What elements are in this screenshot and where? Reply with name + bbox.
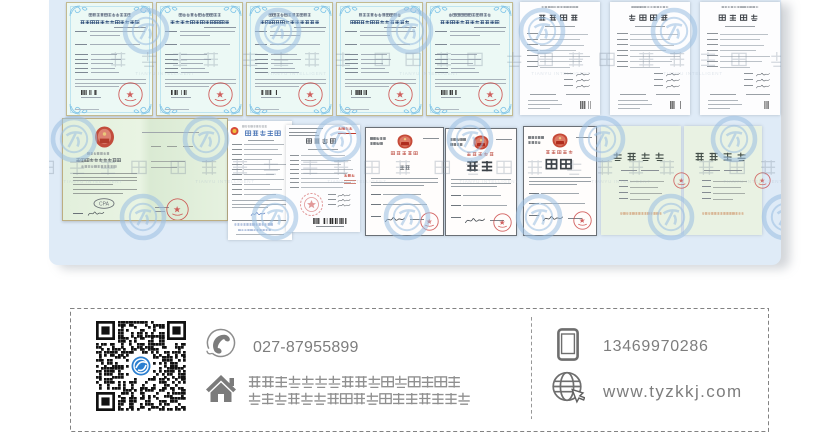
svg-text:CPA: CPA <box>99 202 110 208</box>
